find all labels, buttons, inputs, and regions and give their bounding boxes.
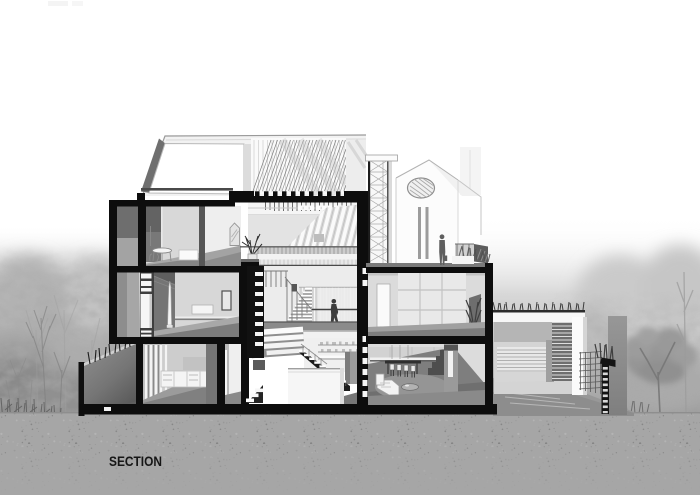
svg-text:SECTION: SECTION [109, 454, 162, 469]
